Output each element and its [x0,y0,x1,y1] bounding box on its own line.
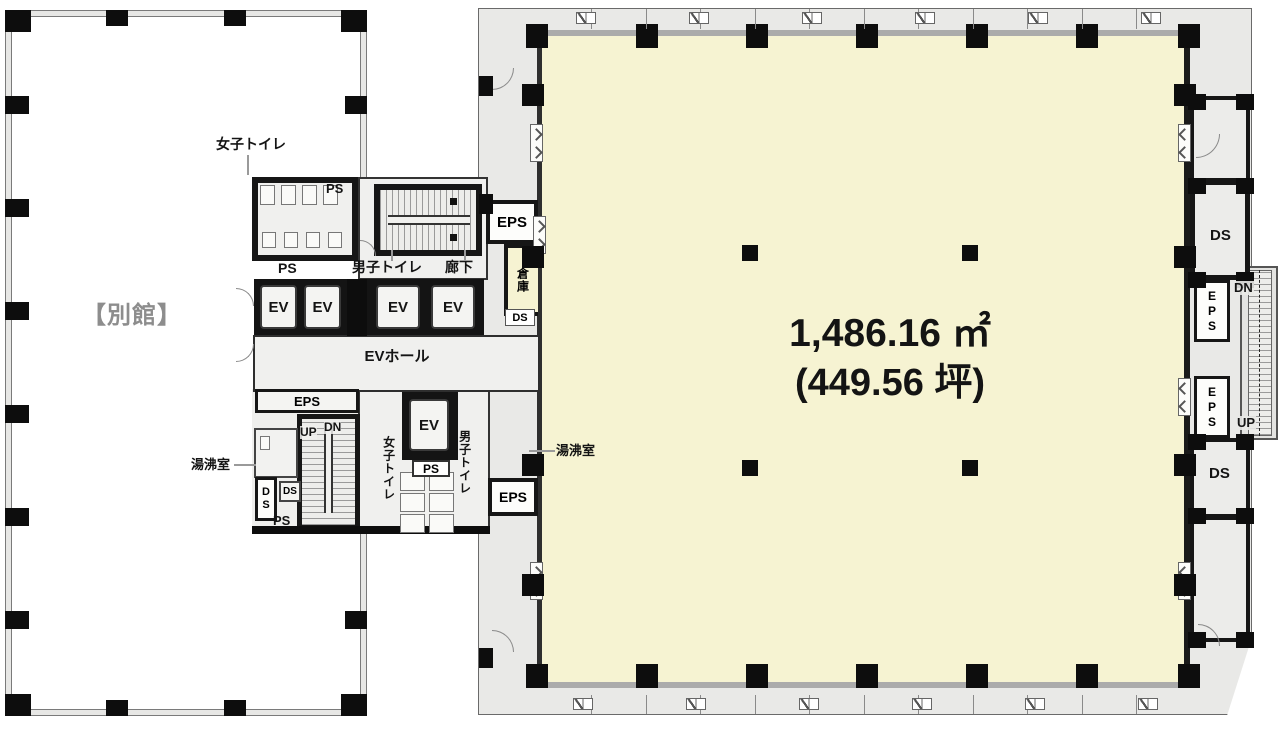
annex-label: 【別館】 [82,303,182,328]
toilet-stall [328,232,342,248]
leader-line [529,450,555,452]
elevator-bank-left: EV EV [254,279,347,336]
facade-tick [1136,695,1137,714]
column-marker [224,10,246,26]
stair-arrow-dot [450,234,457,241]
eps-label-right-upper: EPS [1205,289,1219,334]
window-symbol [1138,698,1158,710]
area-label-tsubo: (449.56 坪) [640,358,1140,408]
ev-label: EV [268,299,288,316]
leader-line [391,250,393,261]
ds-label-right-lower: DS [1209,466,1230,482]
kettle-room-label-right: 湯沸室 [556,444,595,458]
main-room-area-text: 1,486.16 ㎡ (449.56 坪) [640,310,1140,408]
elevator-car: EV [431,285,475,329]
window-symbol [686,698,706,710]
toilet-stall [429,514,454,533]
ds-label-right-upper: DS [1210,228,1231,244]
column-marker [341,10,367,32]
ps-label-bottom-core: PS [273,514,290,528]
window-symbol [1028,12,1048,24]
toilet-stall [260,185,275,205]
eps-shaft-right-lower: EPS [1194,376,1230,438]
column-marker [522,84,544,106]
ds-label-tall: DS [260,486,272,512]
window-symbol [915,12,935,24]
facade-tick [1082,695,1083,714]
eps-shaft-right-upper: EPS [1194,280,1230,342]
facade-tick [1082,9,1083,29]
column-marker [1174,574,1196,596]
window-symbol [689,12,709,24]
column-marker [962,245,978,261]
stair-center-divider [324,423,333,513]
window-symbol [799,698,819,710]
column-marker [526,664,548,688]
column-marker [1178,24,1200,48]
column-marker [479,648,493,668]
floor-plan: 【別館】 1,486.16 ㎡ (449.56 坪) DS EPS EPS DN… [0,0,1280,729]
leader-line [247,155,249,175]
facade-tick [1136,9,1137,29]
eps-label-right-lower: EPS [1205,385,1219,430]
toilet-stall [429,493,454,512]
column-marker [224,700,246,716]
dn-label-core: DN [324,421,341,434]
eps-label-bottom: EPS [499,489,527,505]
ev-label: EV [388,299,408,316]
mens-toilet-label: 男子トイレ [352,260,422,275]
facade-tick [864,695,865,714]
column-marker [5,199,29,217]
ds-shaft-small: DS [279,481,301,502]
dn-label-right: DN [1233,281,1254,295]
column-marker [1236,632,1254,648]
elevator-bank-right: EV EV [367,279,484,336]
facade-tick [755,9,756,29]
column-marker [746,664,768,688]
elevator-single-shaft: EV [402,392,458,460]
column-marker [742,460,758,476]
ds-label-small: DS [283,486,297,497]
eps-label-top: EPS [497,214,527,231]
column-marker [1188,272,1206,288]
elevator-car: EV [409,399,449,451]
column-marker [1236,434,1254,450]
column-marker [746,24,768,48]
column-marker [347,279,367,336]
window-symbol [912,698,932,710]
column-marker [636,24,658,48]
column-marker [5,611,29,629]
window-symbol [1025,698,1045,710]
column-marker [5,96,29,114]
column-marker [522,574,544,596]
column-marker [479,76,493,96]
column-marker [1174,246,1196,268]
ds-tag-storage: DS [505,309,535,326]
window-symbol [576,12,596,24]
column-marker [522,454,544,476]
facade-tick [864,9,865,29]
facade-tick [973,9,974,29]
womens-toilet-label-vertical: 女子トイレ [382,436,395,501]
column-marker [1188,434,1206,450]
column-marker [966,664,988,688]
up-label-right: UP [1236,416,1256,430]
column-marker [966,24,988,48]
ps-box-under-ev: PS [412,460,450,477]
facade-tick [646,9,647,29]
window-symbol [1141,12,1161,24]
column-marker [1236,178,1254,194]
ds-label-storage: DS [512,312,527,324]
eps-room-bottom: EPS [488,478,538,516]
ev-label: EV [419,417,439,434]
column-marker [1188,178,1206,194]
column-marker [742,245,758,261]
stair-landing [388,215,470,225]
column-marker [345,96,367,114]
column-marker [1236,94,1254,110]
facade-tick [755,695,756,714]
stair-arrow-dot [450,198,457,205]
column-marker [341,694,367,716]
column-marker [5,302,29,320]
toilet-stall [281,185,296,205]
column-marker [1188,508,1206,524]
column-marker [5,10,31,32]
column-marker [1076,664,1098,688]
ev-hall-label: EVホール [297,349,497,365]
column-marker [526,24,548,48]
elevator-car: EV [260,285,297,329]
toilet-stall [262,232,276,248]
kettle-room [254,428,298,478]
kettle-room-label-left: 湯沸室 [191,458,230,472]
ev-label: EV [443,299,463,316]
column-marker [106,10,128,26]
mens-toilet-label-vertical: 男子トイレ [458,430,471,495]
window-symbol [573,698,593,710]
column-marker [1174,454,1196,476]
eps-room-top: EPS [486,200,538,244]
leader-line [464,250,466,261]
up-label-core: UP [300,426,317,439]
external-stair-centerline [1259,270,1260,436]
ev-label: EV [312,299,332,316]
column-marker [5,508,29,526]
column-marker [1076,24,1098,48]
column-marker [1236,508,1254,524]
sink-fixture [260,436,270,450]
toilet-stall [306,232,320,248]
double-door-icon [1178,124,1191,162]
upper-stairwell [374,184,482,256]
window-symbol [802,12,822,24]
column-marker [106,700,128,716]
toilet-stall [284,232,298,248]
womens-toilet-label-top: 女子トイレ [216,137,286,152]
column-marker [1178,664,1200,688]
double-door-icon [1178,378,1191,416]
toilet-stall [302,185,317,205]
toilet-stall [400,514,425,533]
ps-label-toilet-bottom: PS [278,261,297,276]
toilet-stall [400,493,425,512]
leader-line [234,464,256,466]
column-marker [5,694,31,716]
area-label-m2: 1,486.16 ㎡ [640,310,1140,358]
column-marker [1188,632,1206,648]
column-marker [1188,94,1206,110]
corridor-label: 廊下 [445,260,473,275]
elevator-car: EV [376,285,420,329]
elevator-car: EV [304,285,341,329]
double-door-icon [530,124,543,162]
column-marker [479,194,493,214]
facade-tick [973,695,974,714]
ps-label-under-ev: PS [423,462,439,476]
column-marker [856,24,878,48]
facade-tick [646,695,647,714]
column-marker [856,664,878,688]
column-marker [522,246,544,268]
storage-label: 倉庫 [515,267,532,293]
column-marker [5,405,29,423]
column-marker [962,460,978,476]
eps-label-bottom-left: EPS [294,394,320,409]
column-marker [636,664,658,688]
column-marker [345,611,367,629]
eps-room-bottom-left: EPS [255,389,359,413]
ps-label-toilet-top: PS [326,182,343,196]
